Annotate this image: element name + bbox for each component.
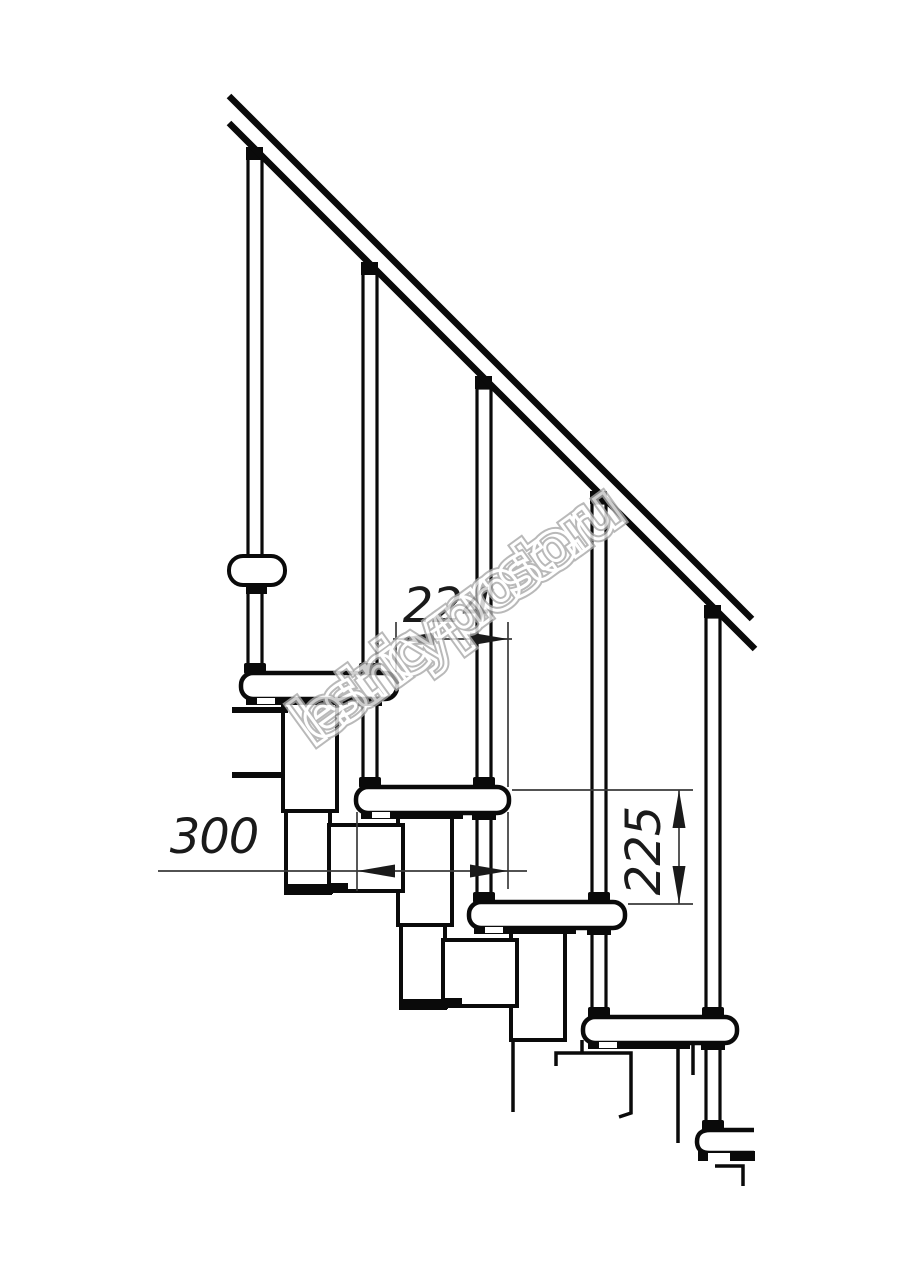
tread-4 [583, 1017, 737, 1043]
collar [244, 663, 266, 674]
baluster-5 [706, 617, 720, 1130]
baluster-1 [248, 158, 262, 673]
tread-2 [356, 787, 509, 813]
tread-5-cropped [697, 1130, 754, 1153]
underplate-notch [599, 1042, 617, 1048]
baluster-4 [592, 503, 606, 1017]
module-foot [402, 999, 448, 1009]
dimension-label-300: 300 [170, 809, 259, 865]
module-box [329, 825, 403, 891]
module-box [286, 811, 330, 893]
tread-3 [469, 902, 625, 928]
module-box [401, 925, 445, 1008]
underplate-tab [701, 1041, 725, 1050]
module-foot [330, 883, 348, 893]
collar [588, 1007, 610, 1018]
dimension-label-225: 225 [616, 807, 672, 896]
underplate-tab [472, 811, 496, 820]
stub-line [232, 707, 288, 713]
underplate-notch [485, 927, 503, 933]
collar [588, 892, 610, 903]
collar [359, 777, 381, 788]
underplate-notch [257, 698, 275, 704]
module-box [443, 940, 517, 1006]
module-box [511, 932, 565, 1040]
underplate-tab [587, 926, 611, 935]
module-foot [444, 998, 462, 1007]
module-foot [287, 884, 333, 894]
drawing-canvas: 224 300 225 lestnicy-prosto.ru lestnicy-… [0, 0, 914, 1280]
collar [702, 1120, 724, 1131]
collar [702, 1007, 724, 1018]
collar [473, 892, 495, 903]
underplate-notch [372, 812, 390, 818]
stub-line [232, 772, 284, 778]
staircase-drawing: 224 300 225 lestnicy-prosto.ru lestnicy-… [0, 0, 914, 1280]
underplate-notch [708, 1153, 730, 1161]
bracket-collar [246, 585, 267, 594]
handrail-bracket [229, 556, 285, 585]
collar [473, 777, 495, 788]
